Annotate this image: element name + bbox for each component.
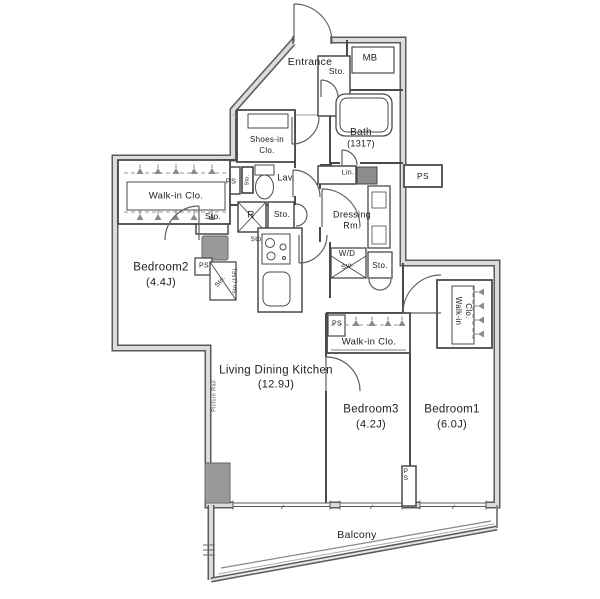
shaft-solid — [357, 167, 377, 184]
label-ps-bedroom2: PS — [199, 263, 209, 270]
solid-box-kitchen — [202, 236, 228, 260]
room-label-bath: Bath — [350, 128, 372, 138]
label-dressing-storage: Sto. — [372, 262, 387, 270]
label-lav-storage: Sto. — [245, 175, 251, 186]
room-label-bedroom2: Bedroom2 — [133, 262, 188, 274]
label-ps-wic3: PS — [332, 321, 342, 328]
balcony-structure — [203, 505, 497, 580]
label-shoes-closet-1: Shoes-in — [250, 136, 284, 144]
room-size-bedroom2: (4.4J) — [146, 278, 176, 289]
lavatory-door — [293, 170, 320, 197]
room-label-dressing-2: Rm. — [343, 222, 360, 231]
bedroom1-door — [403, 275, 441, 313]
label-shoes-closet-2: Clo. — [259, 147, 274, 155]
room-label-mb: MB — [363, 53, 378, 63]
label-picture-rail: Picture Rail — [212, 380, 218, 412]
label-washer-dryer: W/D — [339, 250, 355, 258]
label-ps-exterior: PS — [417, 172, 429, 181]
hall-storage-doors — [296, 204, 307, 226]
kitchen-sink — [263, 272, 290, 306]
label-kitchen-storage: Sto. — [251, 237, 264, 244]
label-hall-storage: Sto. — [274, 210, 290, 219]
label-bedroom2-storage: Sto. — [205, 212, 221, 221]
floor-plan: Entrance MB Bath (1317) Shoes-in Clo. La… — [0, 0, 600, 599]
room-size-ldk: (12.9J) — [258, 380, 294, 391]
toilet-tank — [255, 165, 274, 175]
room-label-entrance: Entrance — [288, 57, 332, 68]
room-label-bedroom1: Bedroom1 — [424, 404, 479, 416]
room-size-bedroom1: (6.0J) — [437, 420, 467, 431]
label-ps-lavatory: PS — [226, 177, 237, 185]
shoes-shelf — [248, 114, 288, 128]
hall-ldk-door — [299, 235, 327, 263]
dressing-storage-doors — [369, 279, 391, 290]
shoes-closet-door — [292, 117, 319, 144]
room-label-ldk: Living Dining Kitchen — [219, 365, 333, 377]
label-wic-bedroom1-2: Clo. — [464, 303, 472, 318]
label-storage-15f: Sto.(15F) — [233, 268, 239, 294]
label-wic-bedroom3: Walk-in Clo. — [342, 337, 396, 347]
label-refrigerator: R — [247, 210, 254, 220]
room-label-dressing-1: Dressing — [333, 211, 371, 220]
label-wic-bedroom2: Walk-in Clo. — [149, 191, 203, 201]
room-label-bedroom3: Bedroom3 — [343, 404, 398, 416]
floor-plan-drawing — [0, 0, 600, 599]
label-linen: Lin. — [342, 170, 355, 177]
room-label-balcony: Balcony — [337, 530, 376, 541]
label-wic-bedroom1-1: Walk-in — [454, 297, 462, 325]
label-entrance-storage: Sto. — [329, 67, 345, 76]
room-label-lavatory: Lav. — [277, 174, 295, 183]
room-size-bedroom3: (4.2J) — [356, 420, 386, 431]
toilet-bowl — [256, 175, 274, 199]
windows — [233, 501, 486, 510]
bath-door — [342, 150, 357, 165]
entrance-opening — [293, 36, 331, 45]
room-size-bath: (1317) — [347, 140, 375, 149]
label-ps-balcony: PS — [402, 468, 409, 482]
solid-box-ldk — [205, 463, 230, 503]
